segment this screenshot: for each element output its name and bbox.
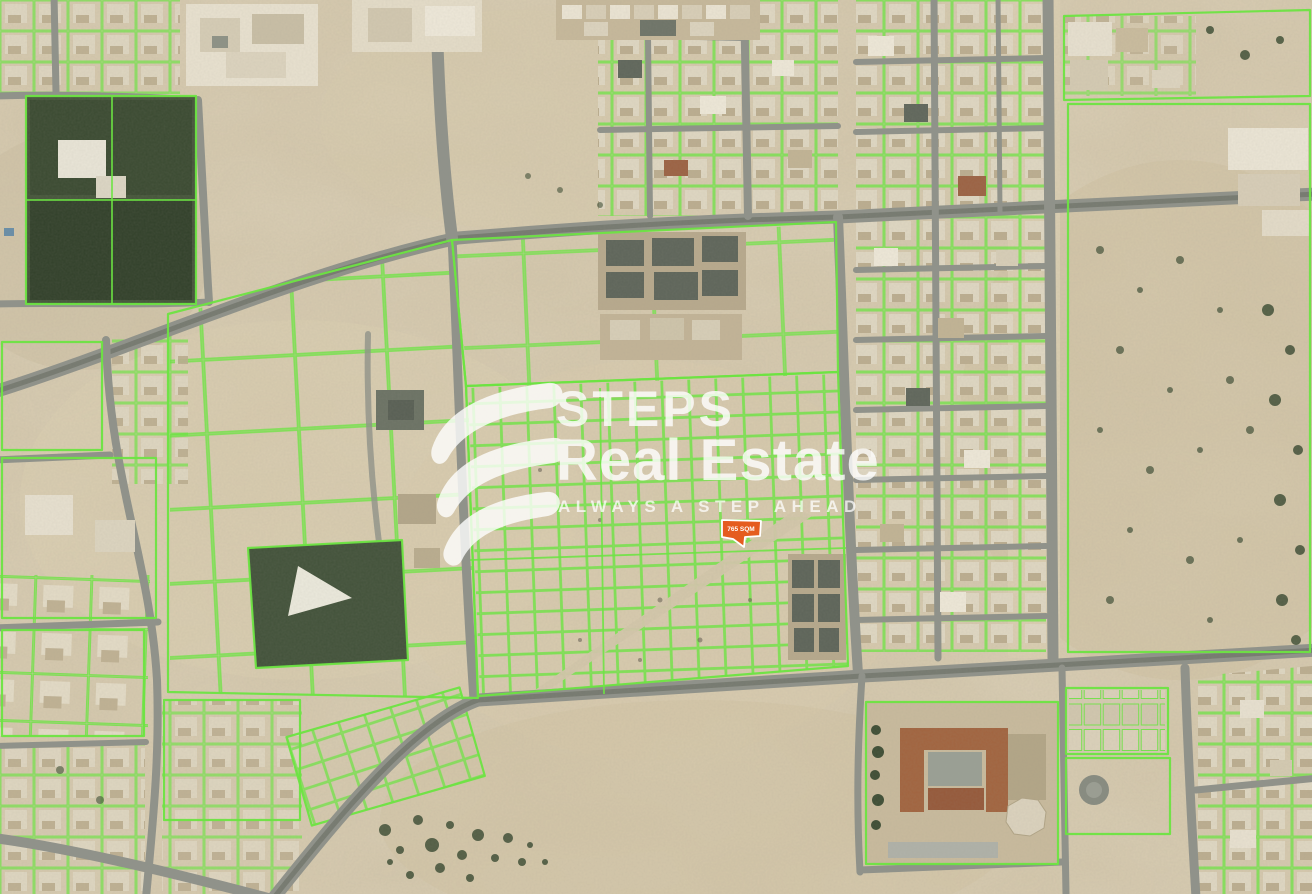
- satellite-map-image: STEPS Real Estate ALWAYS A STEP AHEAD 76…: [0, 0, 1312, 894]
- plot-area-label: 765 SQM: [727, 526, 754, 533]
- satellite-map: STEPS Real Estate ALWAYS A STEP AHEAD 76…: [0, 0, 1312, 894]
- logo-brand-line2-text: Real Estate: [556, 428, 880, 493]
- logo-tagline-text: ALWAYS A STEP AHEAD: [558, 497, 862, 516]
